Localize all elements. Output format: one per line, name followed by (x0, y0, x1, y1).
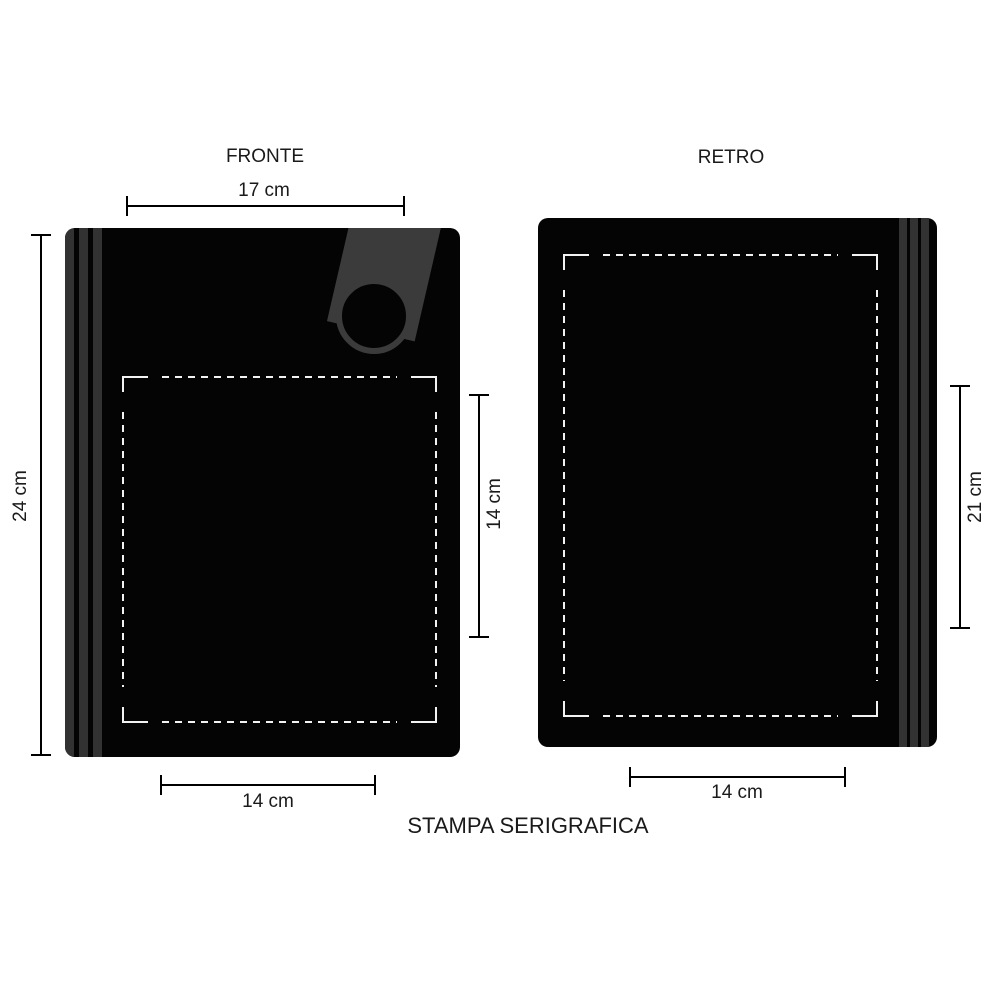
print-area-corner-top-left (563, 254, 589, 270)
print-area-dashed-edge-right (435, 412, 437, 687)
back-panel-label: RETRO (698, 147, 765, 169)
print-area-dashed-edge-top (162, 376, 397, 378)
print-area-corner-bottom-right (852, 701, 878, 717)
print-area-corner-top-right (852, 254, 878, 270)
front-print-area (122, 376, 437, 723)
print-area-corner-bottom-right (411, 707, 437, 723)
front-gusset-stripes (65, 228, 102, 757)
front-width-dimension-line (127, 205, 404, 207)
print-area-corner-top-right (411, 376, 437, 392)
print-area-dashed-edge-top (603, 254, 838, 256)
front-panel-label: FRONTE (226, 146, 304, 168)
back-print-area (563, 254, 878, 717)
front-print-height-dimension-line (478, 395, 480, 637)
hanger-ring (336, 278, 412, 354)
print-method-title: STAMPA SERIGRAFICA (407, 813, 648, 839)
back-print-width-dimension-label: 14 cm (711, 782, 763, 804)
diagram-canvas: FRONTE RETRO (0, 0, 1000, 1000)
front-print-width-dimension-label: 14 cm (242, 791, 294, 813)
back-print-height-dimension-label: 21 cm (965, 471, 987, 523)
front-print-height-dimension-label: 14 cm (484, 478, 506, 530)
front-bag-shape (65, 228, 460, 757)
print-area-dashed-edge-left (122, 412, 124, 687)
back-bag-shape (538, 218, 937, 747)
front-height-dimension-label: 24 cm (10, 470, 32, 522)
print-area-dashed-edge-right (876, 290, 878, 681)
back-print-height-dimension-line (959, 386, 961, 628)
print-area-dashed-edge-bottom (603, 715, 838, 717)
print-area-corner-top-left (122, 376, 148, 392)
print-area-dashed-edge-left (563, 290, 565, 681)
back-gusset-stripes (899, 218, 929, 747)
print-area-corner-bottom-left (563, 701, 589, 717)
front-width-dimension-label: 17 cm (238, 180, 290, 202)
print-area-dashed-edge-bottom (162, 721, 397, 723)
back-print-width-dimension-line (630, 776, 845, 778)
front-print-width-dimension-line (161, 784, 375, 786)
print-area-corner-bottom-left (122, 707, 148, 723)
front-height-dimension-line (40, 235, 42, 755)
